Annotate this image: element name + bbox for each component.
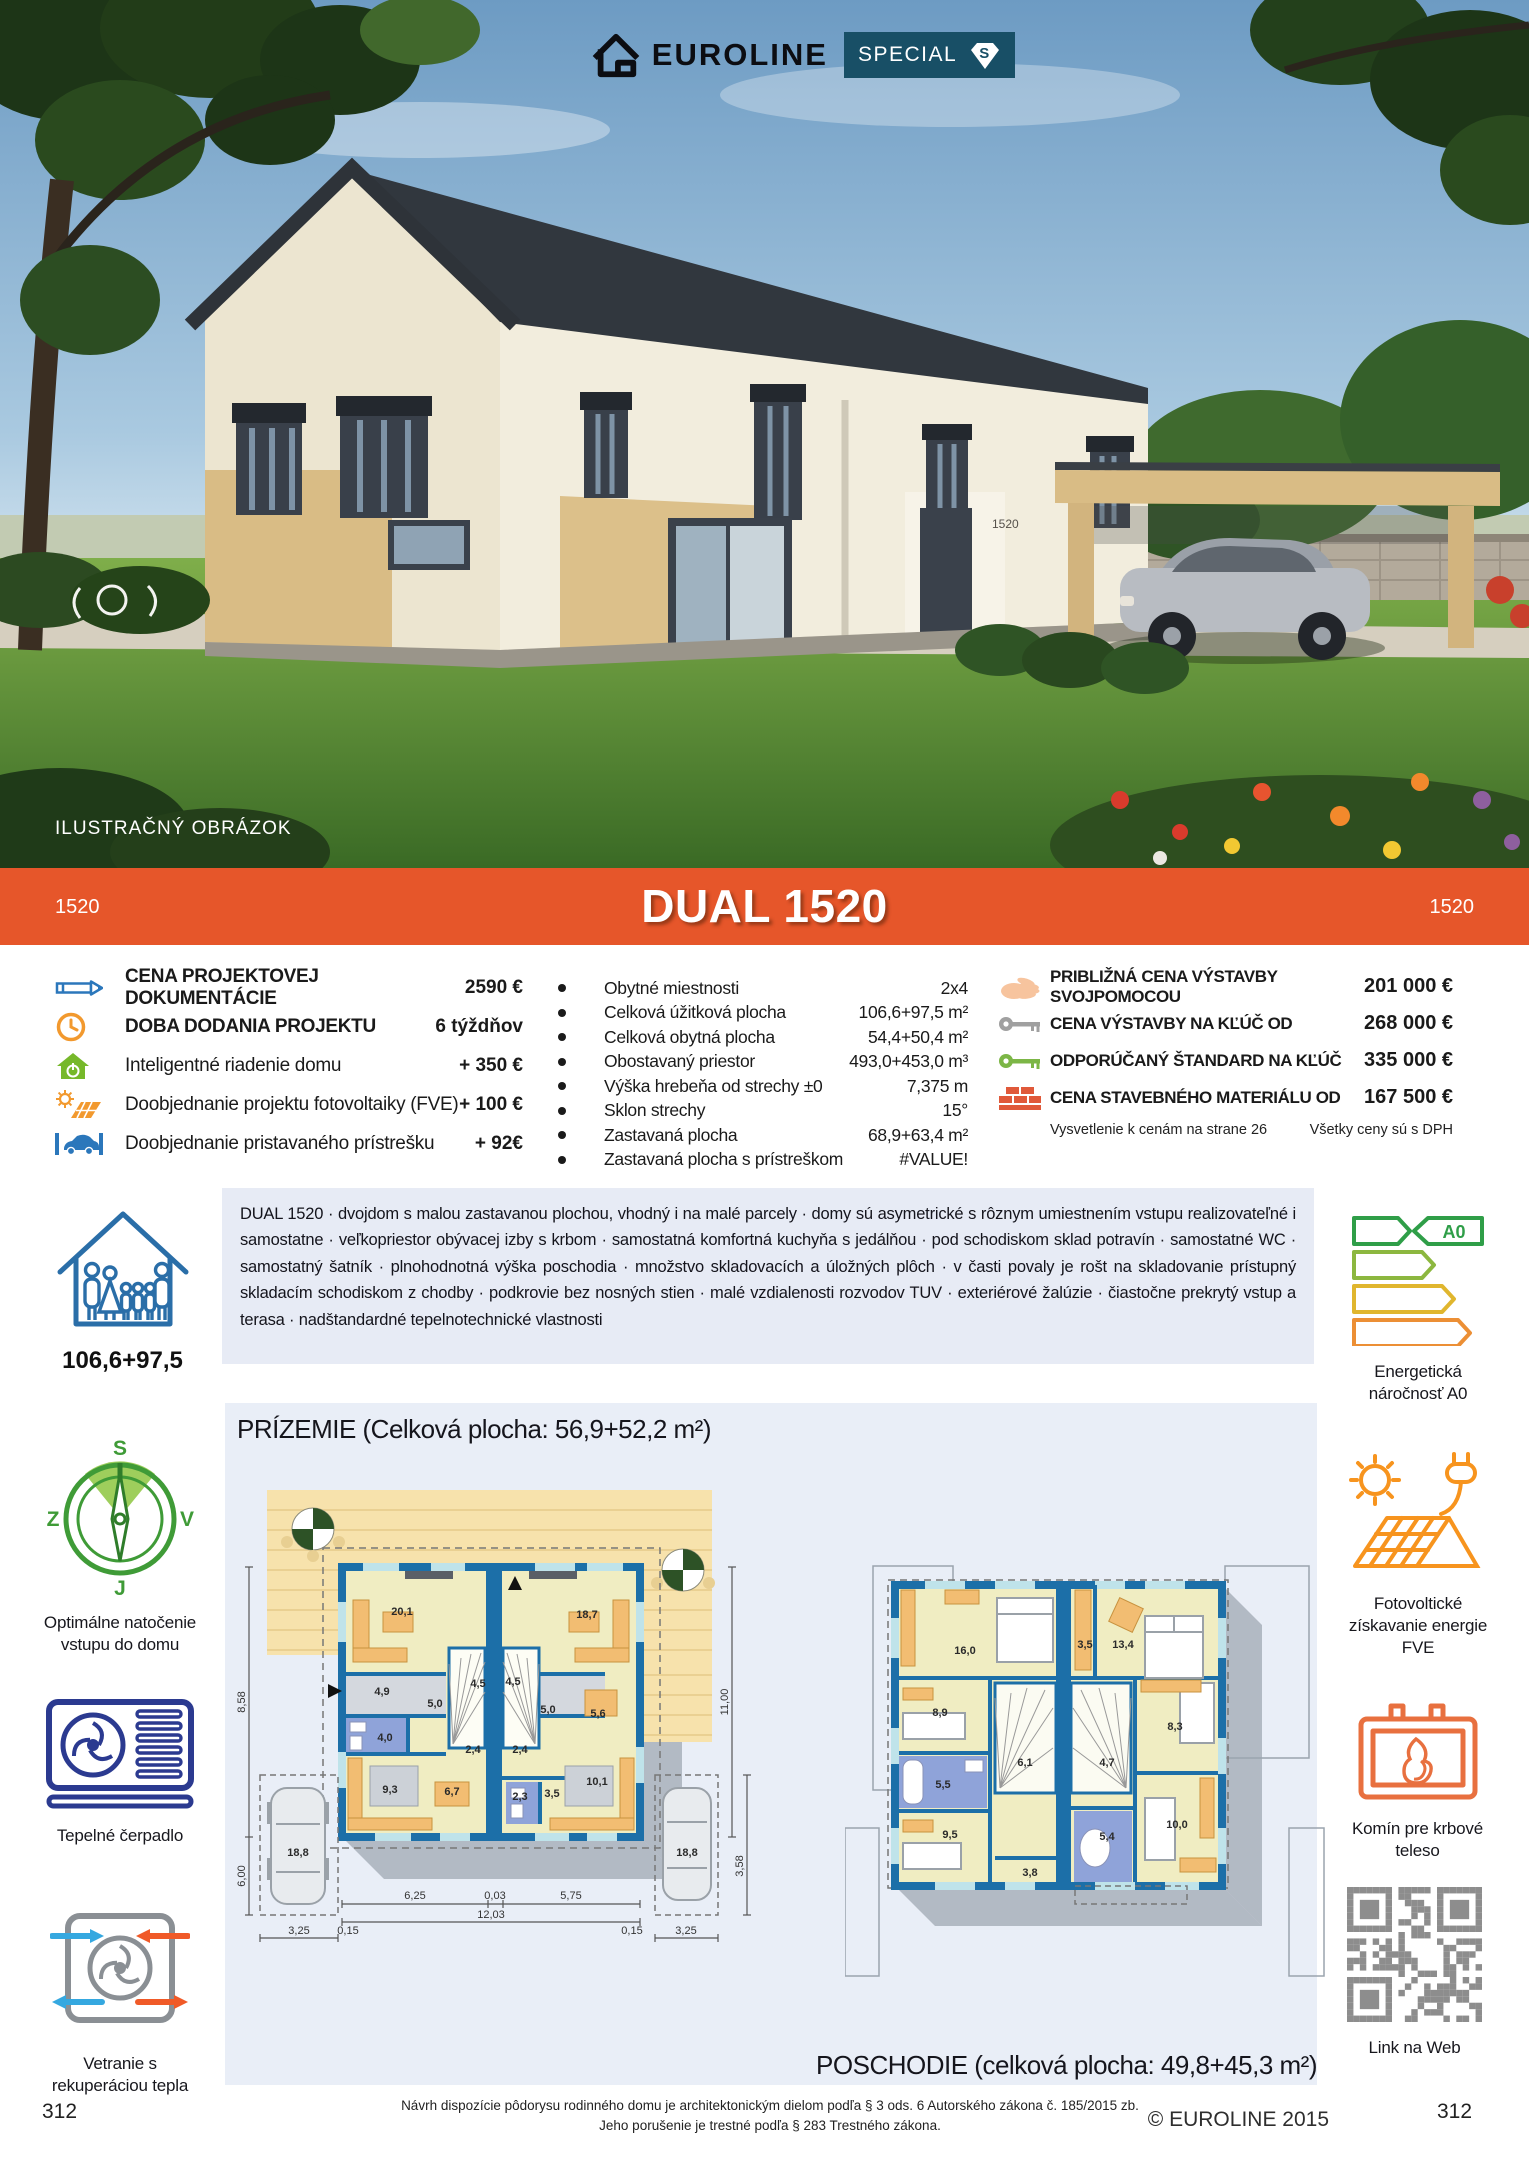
qr-caption: Link na Web (1347, 2037, 1482, 2059)
copyright: © EUROLINE 2015 (1148, 2108, 1329, 2132)
svg-text:5,4: 5,4 (1099, 1831, 1115, 1843)
compass-west-label: Z (47, 1508, 60, 1531)
energy-class-label: A0 (1442, 1222, 1465, 1242)
svg-text:3,5: 3,5 (1077, 1639, 1092, 1651)
svg-text:8,9: 8,9 (932, 1707, 947, 1719)
pricing-row: DOBA DODANIA PROJEKTU 6 týždňov (55, 1007, 523, 1046)
svg-text:9,5: 9,5 (942, 1829, 957, 1841)
bullet (558, 1131, 566, 1139)
bullet (558, 984, 566, 992)
svg-text:13,4: 13,4 (1112, 1639, 1134, 1651)
svg-text:12,03: 12,03 (477, 1909, 505, 1921)
house-render: 1520 (0, 0, 1529, 868)
heat-pump-block: Tepelné čerpadlo (40, 1698, 200, 1847)
svg-text:18,8: 18,8 (287, 1847, 308, 1859)
photovoltaic-caption: Fotovoltické získavanie energie FVE (1338, 1593, 1498, 1659)
spec-row: Celková obytná plocha54,4+50,4 m² (558, 1025, 968, 1050)
bullet (558, 1009, 566, 1017)
bullet (558, 1156, 566, 1164)
svg-text:4,5: 4,5 (470, 1678, 485, 1690)
pricing-row: Doobjednanie projektu fotovoltaiky (FVE)… (55, 1085, 523, 1124)
svg-text:0,15: 0,15 (337, 1925, 358, 1937)
brand-name: EUROLINE (652, 37, 828, 73)
house-photo: 1520 (0, 0, 1529, 868)
legal-text: Návrh dispozície pôdorysu rodinného domu… (320, 2096, 1220, 2136)
spec-row: Obytné miestnosti2x4 (558, 976, 968, 1001)
bullet (558, 1058, 566, 1066)
svg-text:3,8: 3,8 (1022, 1867, 1037, 1879)
clock-icon (55, 1011, 125, 1043)
upper-floor-title: POSCHODIE (celková plocha: 49,8+45,3 m²) (816, 2050, 1317, 2081)
svg-text:2,3: 2,3 (512, 1791, 527, 1803)
svg-text:5,75: 5,75 (560, 1890, 581, 1902)
svg-text:6,7: 6,7 (444, 1786, 459, 1798)
svg-text:S: S (979, 45, 991, 62)
ground-floor-title: PRÍZEMIE (Celková plocha: 56,9+52,2 m²) (237, 1414, 711, 1445)
svg-text:18,8: 18,8 (676, 1847, 697, 1859)
legal-line-1: Návrh dispozície pôdorysu rodinného domu… (320, 2096, 1220, 2116)
svg-text:3,5: 3,5 (544, 1788, 559, 1800)
svg-text:5,0: 5,0 (540, 1704, 555, 1716)
svg-text:5,6: 5,6 (590, 1708, 605, 1720)
floorplan-upper: 16,0 8,9 5,5 6,1 9,5 3,8 3,5 13,4 8,3 4,… (845, 1528, 1325, 2048)
pricing-row: CENA PROJEKTOVEJ DOKUMENTÁCIE 2590 € (55, 968, 523, 1007)
compass-icon: S V J Z (45, 1437, 195, 1597)
house-number: 1520 (992, 517, 1019, 531)
spec-row: Zastavaná plocha s prístreškom#VALUE! (558, 1148, 968, 1173)
spec-row: Obostavaný priestor493,0+453,0 m³ (558, 1050, 968, 1075)
description-text: DUAL 1520 · dvojdom s malou zastavanou p… (240, 1201, 1296, 1333)
note-vat: Všetky ceny sú s DPH (1310, 1122, 1453, 1138)
svg-text:9,3: 9,3 (382, 1784, 397, 1796)
brand: EUROLINE (590, 30, 828, 80)
svg-text:5,0: 5,0 (427, 1698, 442, 1710)
svg-text:2,4: 2,4 (512, 1744, 528, 1756)
compass-caption: Optimálne natočenie vstupu do domu (40, 1612, 200, 1656)
svg-text:4,5: 4,5 (505, 1676, 520, 1688)
build-pricing-column: PRIBLIŽNÁ CENA VÝSTAVBY SVOJPOMOCOU 201 … (998, 968, 1453, 1138)
pricing-row: Doobjednanie pristavaného prístrešku + 9… (55, 1124, 523, 1163)
photovoltaic-block: Fotovoltické získavanie energie FVE (1338, 1448, 1498, 1659)
svg-text:6,25: 6,25 (404, 1890, 425, 1902)
pricing-row: CENA VÝSTAVBY NA KĽÚČ OD 268 000 € (998, 1005, 1453, 1042)
heat-pump-caption: Tepelné čerpadlo (40, 1825, 200, 1847)
special-badge: SPECIAL S (844, 32, 1015, 78)
bullet (558, 1082, 566, 1090)
svg-text:11,00: 11,00 (719, 1689, 731, 1716)
svg-text:4,7: 4,7 (1099, 1757, 1114, 1769)
smart-home-icon (55, 1051, 125, 1081)
chimney-caption: Komín pre krbové teleso (1340, 1818, 1495, 1862)
bricks-icon (998, 1085, 1050, 1111)
svg-text:6,00: 6,00 (236, 1865, 248, 1886)
pricing-notes: Vysvetlenie k cenám na strane 26 Všetky … (998, 1122, 1453, 1138)
spec-row: Sklon strechy15° (558, 1099, 968, 1124)
svg-text:5,5: 5,5 (935, 1779, 950, 1791)
ventilation-block: Vetranie s rekuperáciou tepla (40, 1898, 200, 2097)
svg-text:4,0: 4,0 (377, 1732, 392, 1744)
svg-text:10,1: 10,1 (586, 1776, 607, 1788)
catalog-page: 1520 (0, 0, 1529, 2160)
qr-block: Link na Web (1347, 1887, 1482, 2059)
bullet (558, 1033, 566, 1041)
svg-text:3,58: 3,58 (734, 1855, 746, 1876)
svg-text:20,1: 20,1 (391, 1606, 412, 1618)
floorplan-ground: 18,8 18,8 20,1 4,9 5,0 4,5 4,0 9,3 6,7 2… (235, 1452, 815, 2032)
bullet (558, 1107, 566, 1115)
model-code-left: 1520 (55, 896, 100, 919)
parking-left: 18,8 (260, 1775, 338, 1915)
chimney-block: Komín pre krbové teleso (1340, 1703, 1495, 1862)
key-gray-icon (998, 1015, 1050, 1033)
special-s-icon: S (969, 40, 1001, 70)
carport-icon (55, 1131, 125, 1157)
svg-text:16,0: 16,0 (954, 1645, 975, 1657)
legal-line-2: Jeho porušenie je trestné podľa § 283 Tr… (320, 2116, 1220, 2136)
svg-text:2,4: 2,4 (465, 1744, 481, 1756)
title-banner: 1520 DUAL 1520 1520 (0, 868, 1529, 945)
energy-block: A0 Energetická náročnosť A0 (1338, 1212, 1498, 1405)
pricing-row: ODPORÚČANÝ ŠTANDARD NA KĽÚČ 335 000 € (998, 1042, 1453, 1079)
total-area-label: 106,6+97,5 (40, 1347, 205, 1375)
note-prices-page: Vysvetlenie k cenám na strane 26 (1050, 1122, 1267, 1138)
photo-caption: ILUSTRAČNÝ OBRÁZOK (55, 818, 292, 840)
ventilation-icon (50, 1898, 190, 2038)
header-logo-bar: EUROLINE SPECIAL S (38, 30, 1529, 80)
hand-icon (998, 973, 1050, 1001)
ventilation-caption: Vetranie s rekuperáciou tepla (40, 2053, 200, 2097)
family-house-icon (48, 1196, 198, 1336)
page-number-right: 312 (1437, 2100, 1472, 2124)
compass-east-label: V (180, 1508, 194, 1531)
svg-text:8,58: 8,58 (236, 1691, 248, 1712)
solar-project-icon (55, 1090, 125, 1120)
svg-text:6,1: 6,1 (1017, 1757, 1032, 1769)
svg-text:0,15: 0,15 (621, 1925, 642, 1937)
svg-text:4,9: 4,9 (374, 1686, 389, 1698)
compass-north-label: S (113, 1437, 127, 1460)
spec-row: Výška hrebeňa od strechy ±07,375 m (558, 1074, 968, 1099)
svg-text:10,0: 10,0 (1166, 1819, 1187, 1831)
model-code-right: 1520 (1430, 896, 1475, 919)
family-house-block: 106,6+97,5 (40, 1196, 205, 1375)
svg-text:18,7: 18,7 (576, 1609, 597, 1621)
key-green-icon (998, 1052, 1050, 1070)
pricing-row: CENA STAVEBNÉHO MATERIÁLU OD 167 500 € (998, 1079, 1453, 1116)
svg-text:0,03: 0,03 (484, 1890, 505, 1902)
qr-code (1347, 1887, 1482, 2022)
page-number-left: 312 (42, 2100, 77, 2124)
euroline-house-icon (590, 30, 642, 80)
specs-column: Obytné miestnosti2x4 Celková úžitková pl… (558, 976, 968, 1172)
pricing-row: PRIBLIŽNÁ CENA VÝSTAVBY SVOJPOMOCOU 201 … (998, 968, 1453, 1005)
pricing-row: Inteligentné riadenie domu + 350 € (55, 1046, 523, 1085)
compass-block: S V J Z Optimálne natočenie vstupu do do… (40, 1437, 200, 1656)
energy-rating-icon: A0 (1348, 1212, 1488, 1346)
svg-text:3,25: 3,25 (675, 1925, 696, 1937)
heat-pump-icon (45, 1698, 195, 1810)
svg-text:8,3: 8,3 (1167, 1721, 1182, 1733)
page-title: DUAL 1520 (0, 868, 1529, 945)
photovoltaic-icon (1343, 1448, 1493, 1578)
parking-right: 18,8 (655, 1775, 718, 1915)
description-panel: DUAL 1520 · dvojdom s malou zastavanou p… (222, 1188, 1314, 1364)
pencil-icon (55, 978, 125, 998)
project-pricing-column: CENA PROJEKTOVEJ DOKUMENTÁCIE 2590 € DOB… (55, 968, 523, 1163)
chimney-icon (1353, 1703, 1483, 1803)
compass-south-label: J (114, 1577, 126, 1597)
svg-text:3,25: 3,25 (288, 1925, 309, 1937)
spec-row: Celková úžitková plocha106,6+97,5 m² (558, 1001, 968, 1026)
energy-caption: Energetická náročnosť A0 (1338, 1361, 1498, 1405)
special-badge-label: SPECIAL (858, 43, 957, 67)
spec-row: Zastavaná plocha68,9+63,4 m² (558, 1123, 968, 1148)
